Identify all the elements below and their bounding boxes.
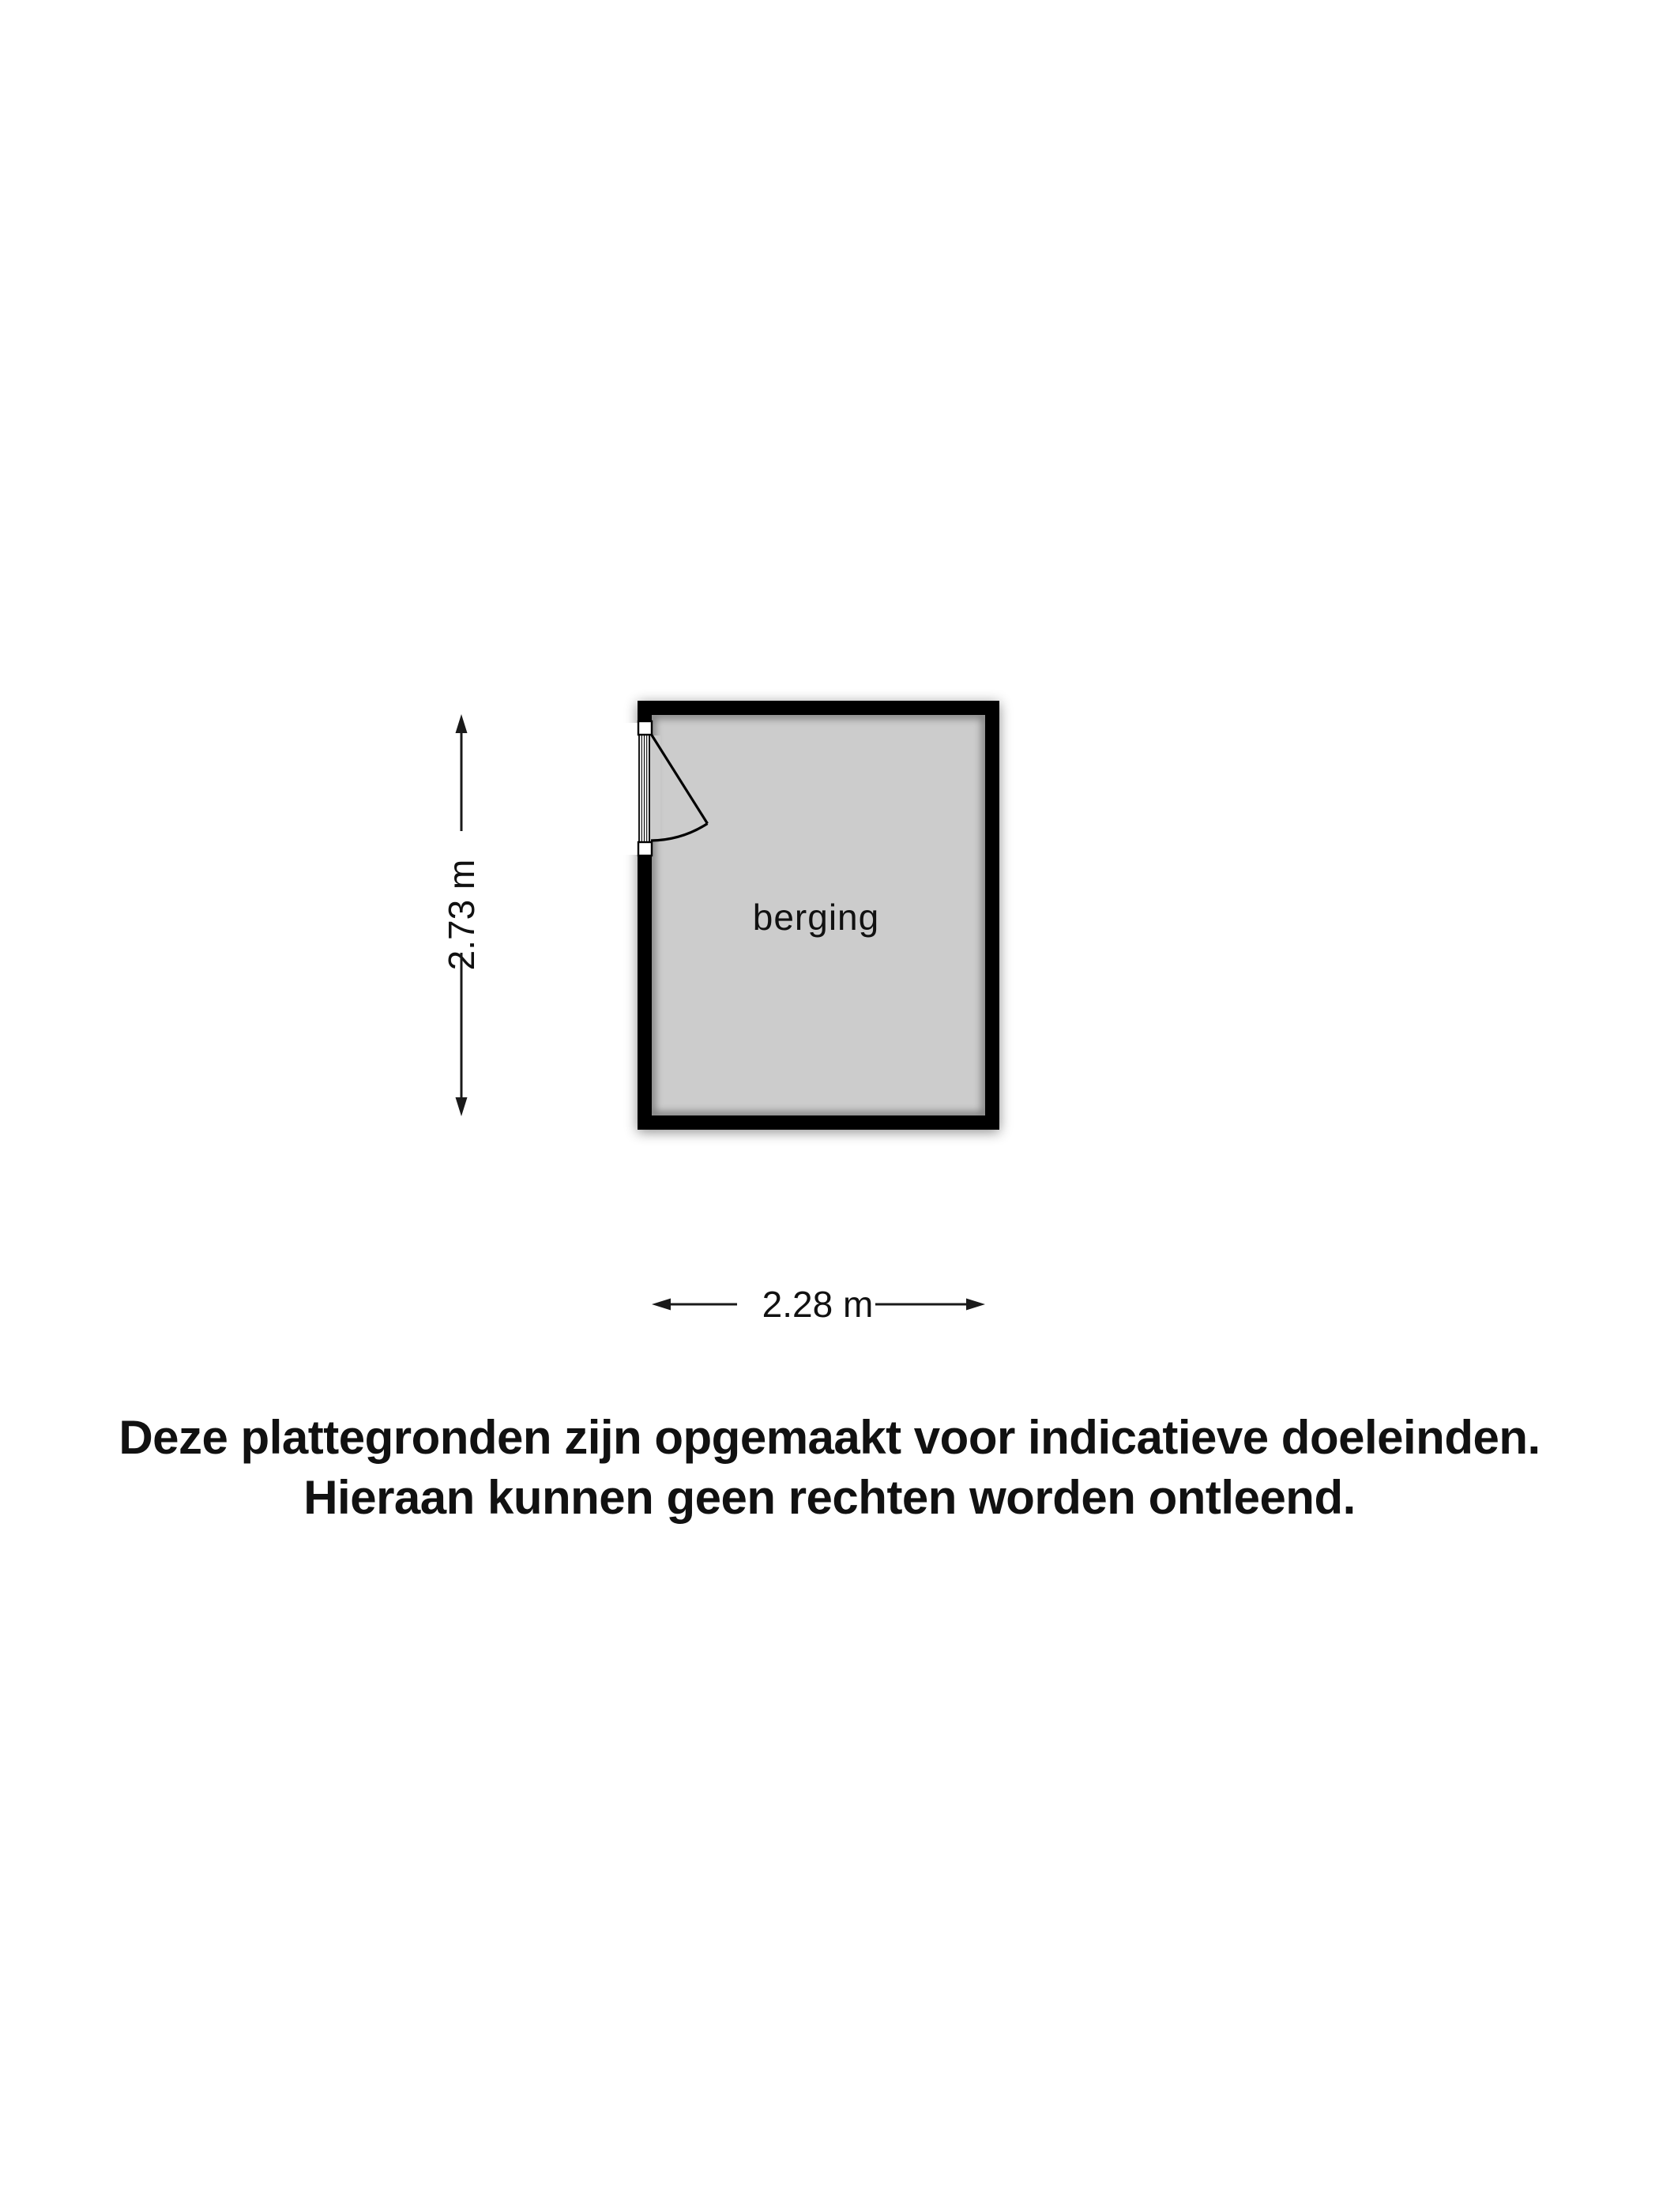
height-dimension: 2.73 m [441,714,482,1116]
floor-plan-canvas: berging 2.73 m 2.28 m [0,0,1659,2212]
room-berging: berging [618,701,999,1130]
door-opening-floor-patch [649,735,660,841]
arrow-down-icon [456,1097,468,1116]
disclaimer-line-2: Hieraan kunnen geen rechten worden ontle… [0,1468,1659,1528]
room-label: berging [753,897,879,938]
width-dimension: 2.28 m [652,1284,985,1325]
arrow-right-icon [966,1299,985,1311]
disclaimer: Deze plattegronden zijn opgemaakt voor i… [0,1408,1659,1528]
door-jamb-top [638,721,652,735]
arrow-left-icon [652,1299,671,1311]
floor-plan-page: berging 2.73 m 2.28 m Deze plattegronden… [0,0,1659,2212]
door-jamb-bottom [638,842,652,856]
disclaimer-line-1: Deze plattegronden zijn opgemaakt voor i… [0,1408,1659,1468]
arrow-up-icon [456,714,468,733]
width-dimension-label: 2.28 m [762,1284,874,1325]
